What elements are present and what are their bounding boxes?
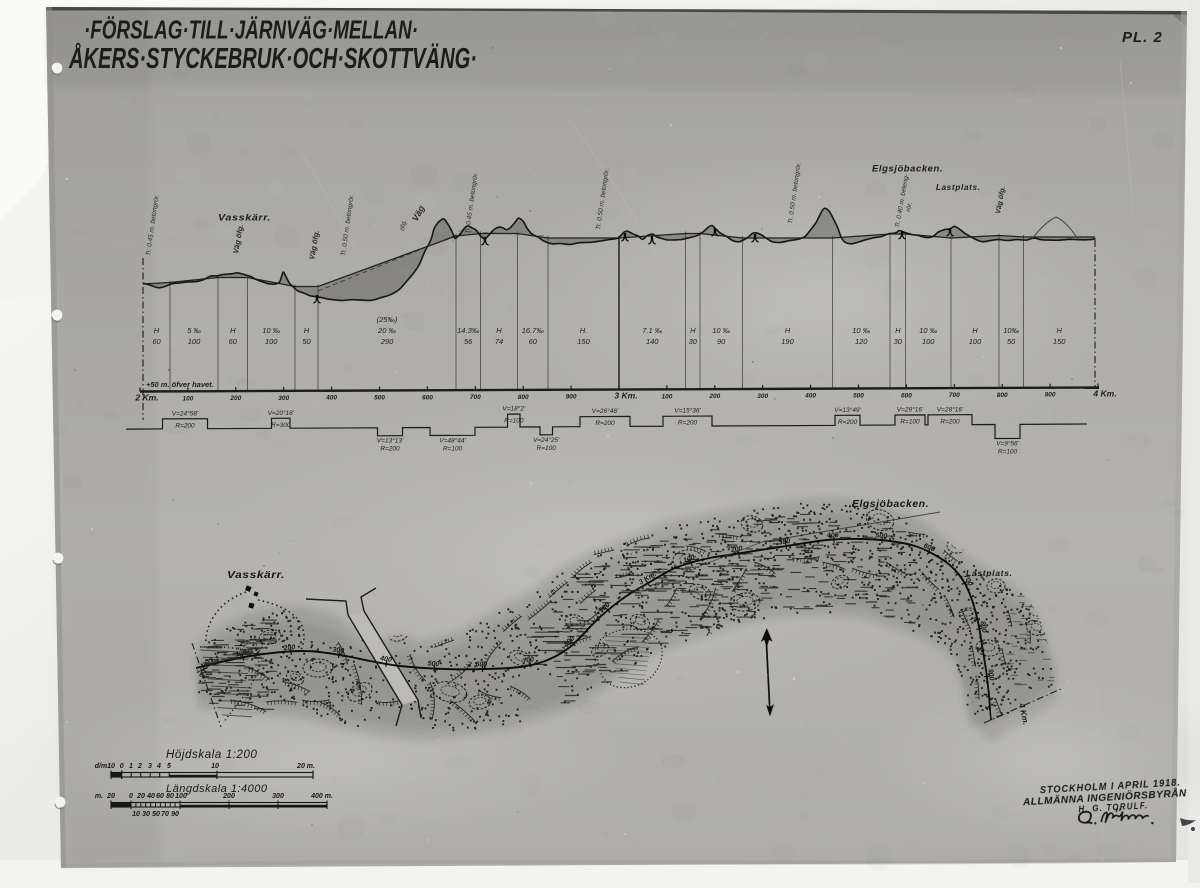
svg-text:R=200: R=200 xyxy=(380,446,400,453)
svg-text:Lastplats.: Lastplats. xyxy=(936,183,980,192)
svg-text:800: 800 xyxy=(997,392,1008,399)
svg-text:150: 150 xyxy=(1053,337,1066,346)
svg-text:56: 56 xyxy=(464,337,473,346)
svg-text:H: H xyxy=(304,326,310,335)
svg-text:290: 290 xyxy=(380,337,394,346)
svg-text:200: 200 xyxy=(282,644,295,652)
svg-text:3: 3 xyxy=(148,763,152,770)
svg-text:ÅKERS·STYCKEBRUK·OCH·SKOTTVÄNG: ÅKERS·STYCKEBRUK·OCH·SKOTTVÄNG· xyxy=(68,42,477,75)
svg-text:V=26°46': V=26°46' xyxy=(592,407,619,415)
svg-text:R=100: R=100 xyxy=(537,445,557,452)
svg-text:190: 190 xyxy=(781,337,794,346)
svg-text:V=9°56': V=9°56' xyxy=(996,439,1020,447)
svg-text:4: 4 xyxy=(156,763,161,770)
svg-text:100: 100 xyxy=(969,337,982,346)
svg-text:100: 100 xyxy=(265,337,278,346)
svg-text:100: 100 xyxy=(922,337,935,346)
svg-text:R=100: R=100 xyxy=(443,445,463,452)
svg-text:V=29°16': V=29°16' xyxy=(897,406,924,414)
svg-text:H: H xyxy=(895,326,901,335)
svg-text:Lastplats.: Lastplats. xyxy=(966,568,1012,578)
svg-text:2: 2 xyxy=(137,763,142,770)
svg-text:Elgsjöbacken.: Elgsjöbacken. xyxy=(852,499,929,510)
svg-text:V=18°2': V=18°2' xyxy=(502,405,526,413)
svg-text:H: H xyxy=(496,326,502,335)
svg-text:120: 120 xyxy=(855,337,868,346)
svg-text:H: H xyxy=(154,326,160,335)
svg-text:60: 60 xyxy=(229,337,238,346)
svg-text:V=13°49': V=13°49' xyxy=(834,406,861,414)
svg-text:R=200: R=200 xyxy=(838,419,858,426)
svg-text:400 m.: 400 m. xyxy=(310,793,333,800)
svg-text:V=28°16': V=28°16' xyxy=(937,405,964,413)
svg-text:R=200: R=200 xyxy=(678,420,698,427)
svg-text:800: 800 xyxy=(518,394,529,401)
svg-text:V=13°13': V=13°13' xyxy=(377,437,404,445)
svg-text:70: 70 xyxy=(161,811,169,818)
svg-text:4 Km.: 4 Km. xyxy=(1092,389,1116,399)
svg-text:R=200: R=200 xyxy=(940,418,960,425)
svg-text:200: 200 xyxy=(708,393,720,400)
svg-text:700: 700 xyxy=(949,392,960,399)
svg-text:300: 300 xyxy=(332,647,344,655)
svg-text:10: 10 xyxy=(107,763,115,770)
svg-text:Vasskärr.: Vasskärr. xyxy=(218,213,271,224)
svg-text:400: 400 xyxy=(804,393,816,400)
svg-text:3 Km.: 3 Km. xyxy=(614,391,637,401)
svg-text:V=24°25': V=24°25' xyxy=(533,436,560,444)
svg-text:10: 10 xyxy=(211,763,219,770)
svg-text:50: 50 xyxy=(152,811,160,818)
svg-text:100: 100 xyxy=(661,393,672,400)
svg-text:H.: H. xyxy=(580,326,588,335)
svg-text:300: 300 xyxy=(278,395,289,402)
svg-text:R=100: R=100 xyxy=(504,418,524,425)
svg-text:400: 400 xyxy=(325,395,337,402)
svg-text:300: 300 xyxy=(272,793,284,800)
svg-text:500: 500 xyxy=(374,395,385,402)
svg-text:0: 0 xyxy=(120,763,124,770)
svg-text:600: 600 xyxy=(476,662,488,669)
svg-text:10 ‰: 10 ‰ xyxy=(262,326,280,335)
svg-text:700: 700 xyxy=(470,394,481,401)
svg-text:20 m.: 20 m. xyxy=(296,763,315,770)
svg-text:5: 5 xyxy=(167,763,171,770)
svg-text:+50 m. öfver havet.: +50 m. öfver havet. xyxy=(146,380,214,389)
svg-text:20 ‰: 20 ‰ xyxy=(377,326,396,335)
svg-text:200: 200 xyxy=(222,793,235,800)
svg-text:900: 900 xyxy=(566,394,577,401)
svg-text:40: 40 xyxy=(146,793,155,800)
svg-text:90: 90 xyxy=(171,811,179,818)
svg-text:30: 30 xyxy=(894,337,903,346)
svg-text:R=200: R=200 xyxy=(595,420,615,427)
svg-text:14.3‰: 14.3‰ xyxy=(457,326,480,335)
svg-text:10‰: 10‰ xyxy=(1003,326,1019,335)
svg-text:5 ‰: 5 ‰ xyxy=(187,326,201,335)
svg-text:20: 20 xyxy=(136,793,145,800)
svg-text:400: 400 xyxy=(826,532,839,539)
svg-text:50: 50 xyxy=(1007,337,1016,346)
svg-text:140: 140 xyxy=(646,337,659,346)
svg-text:900: 900 xyxy=(1045,392,1056,399)
svg-text:150: 150 xyxy=(577,337,590,346)
svg-text:100: 100 xyxy=(188,337,201,346)
svg-text:90: 90 xyxy=(717,337,726,346)
svg-text:0: 0 xyxy=(129,793,133,800)
svg-text:10 ‰: 10 ‰ xyxy=(919,326,937,335)
svg-text:PL. 2: PL. 2 xyxy=(1122,29,1163,46)
svg-text:300: 300 xyxy=(757,393,768,400)
svg-text:V=20°16': V=20°16' xyxy=(268,409,295,417)
svg-text:(25‰): (25‰) xyxy=(377,315,398,324)
svg-text:100: 100 xyxy=(182,395,193,402)
svg-text:Vasskärr.: Vasskärr. xyxy=(227,569,285,581)
svg-text:900: 900 xyxy=(986,669,994,682)
svg-text:H: H xyxy=(972,326,978,335)
svg-text:10 ‰: 10 ‰ xyxy=(852,326,870,335)
svg-text:m.: m. xyxy=(95,793,103,800)
svg-text:R=100: R=100 xyxy=(998,448,1018,455)
svg-text:Höjdskala 1:200: Höjdskala 1:200 xyxy=(166,749,257,761)
svg-text:H: H xyxy=(230,326,236,335)
svg-text:V=15°36': V=15°36' xyxy=(674,407,701,415)
svg-text:16.7‰: 16.7‰ xyxy=(522,326,545,335)
svg-text:R=300: R=300 xyxy=(271,422,291,429)
svg-text:7.1 ‰: 7.1 ‰ xyxy=(642,326,663,335)
svg-text:d/m: d/m xyxy=(95,763,107,770)
svg-text:600: 600 xyxy=(901,392,912,399)
svg-text:20: 20 xyxy=(106,793,115,800)
svg-text:2 Km.: 2 Km. xyxy=(134,393,158,403)
svg-text:V=24°58': V=24°58' xyxy=(172,409,199,417)
svg-text:500: 500 xyxy=(427,660,439,668)
svg-text:·FÖRSLAG·TILL·JÄRNVÄG·MELLAN·: ·FÖRSLAG·TILL·JÄRNVÄG·MELLAN· xyxy=(84,15,418,45)
svg-text:Elgsjöbacken.: Elgsjöbacken. xyxy=(872,164,943,175)
svg-text:H: H xyxy=(1056,326,1062,335)
svg-text:50: 50 xyxy=(302,337,311,346)
svg-text:H: H xyxy=(785,326,791,335)
svg-text:1: 1 xyxy=(129,763,133,770)
svg-text:V=48°44': V=48°44' xyxy=(439,436,466,444)
svg-text:60: 60 xyxy=(156,793,164,800)
svg-text:60: 60 xyxy=(529,337,538,346)
svg-text:200: 200 xyxy=(229,395,241,402)
svg-text:500: 500 xyxy=(875,532,887,540)
svg-text:600: 600 xyxy=(422,394,433,401)
svg-text:10 ‰: 10 ‰ xyxy=(712,326,730,335)
